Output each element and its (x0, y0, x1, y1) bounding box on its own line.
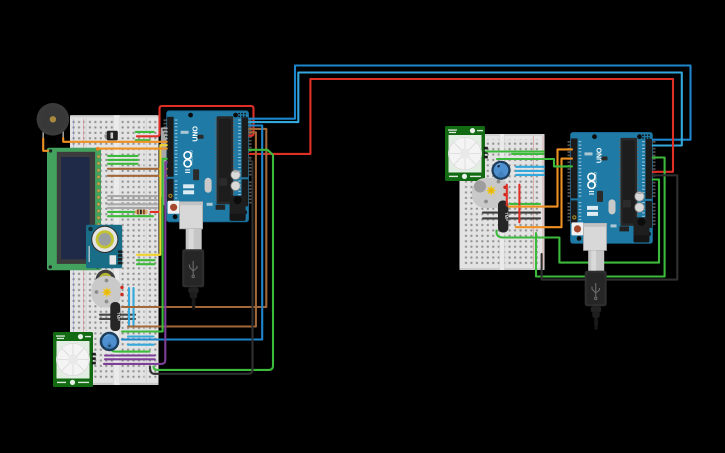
svg-text:TMP: TMP (504, 212, 509, 221)
svg-text:TMP: TMP (116, 312, 121, 321)
